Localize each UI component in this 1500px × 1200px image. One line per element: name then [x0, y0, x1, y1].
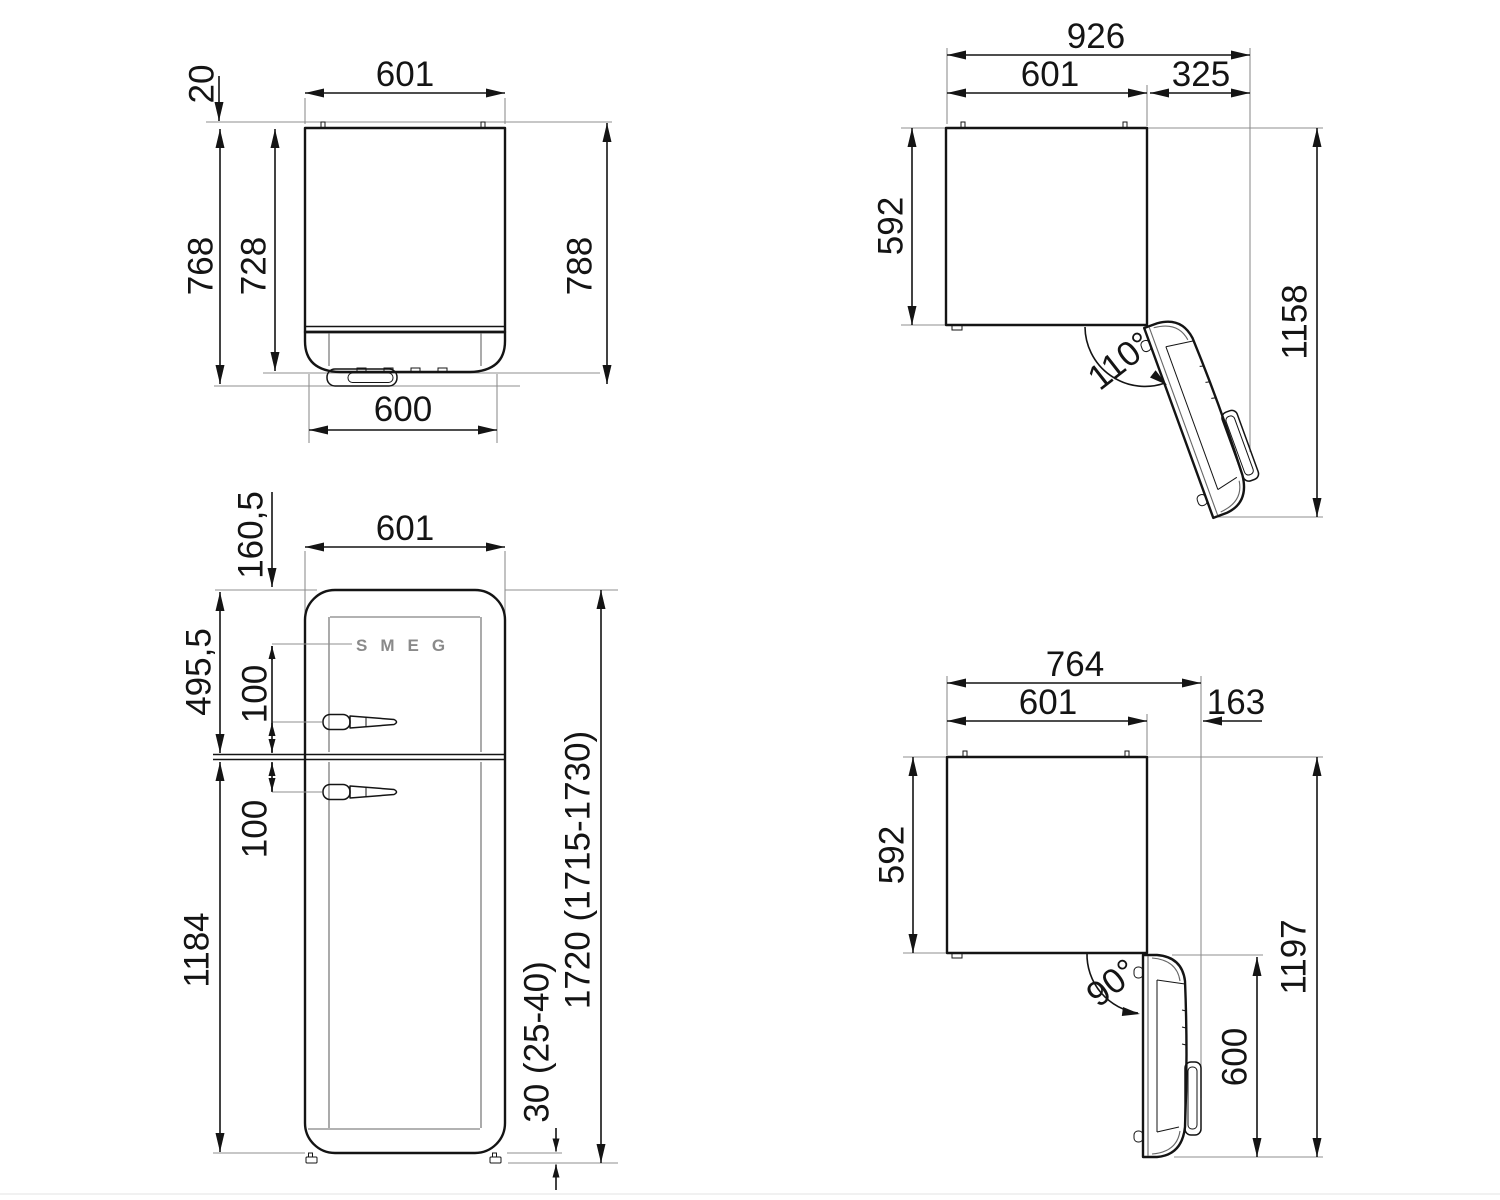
- fridge-body-top: [947, 757, 1147, 953]
- upper-door-handle: [323, 715, 397, 730]
- arc-arrowhead: [1122, 1007, 1140, 1016]
- view-top-open-110: 110° 926 601 325 592 1158: [872, 17, 1324, 521]
- dim-depth-label: 592: [873, 826, 912, 884]
- view-front: SMEG 601 160,5 495,5: [178, 491, 619, 1190]
- dim-clearance-label: 325: [1172, 55, 1230, 94]
- fridge-front: [305, 590, 505, 1153]
- dim-logo-offset-label: 160,5: [232, 491, 271, 579]
- dim-width-label: 601: [376, 509, 434, 548]
- adjustable-foot: [306, 1153, 317, 1163]
- view-top-open-90: 90° 764 601 163 592 1197 600: [873, 645, 1324, 1157]
- dim-overall-depth-label: 1197: [1275, 919, 1314, 994]
- dim-overall-depth-label: 1158: [1276, 284, 1315, 359]
- fridge-dimension-drawing: 601 20 768 728 788 600 110°: [0, 0, 1500, 1200]
- brand-logo: SMEG: [356, 636, 458, 655]
- door-front-top: [305, 332, 505, 372]
- dim-overall-width-label: 764: [1046, 645, 1104, 684]
- dim-lower-handle-label: 100: [236, 800, 275, 858]
- dim-height-label: 1720 (1715-1730): [559, 731, 598, 1009]
- dim-width-label: 601: [1021, 55, 1079, 94]
- arc-arrowhead: [1150, 370, 1167, 385]
- dim-width-label: 601: [1019, 683, 1077, 722]
- lower-door-handle: [323, 785, 397, 800]
- dim-door-width-label: 600: [374, 390, 432, 429]
- technical-drawing-page: 601 20 768 728 788 600 110°: [0, 0, 1500, 1200]
- dim-door-depth-label: 600: [1216, 1028, 1255, 1086]
- dim-upper-handle-label: 100: [236, 665, 275, 723]
- fridge-body-top: [946, 128, 1147, 325]
- dim-overall-width-label: 926: [1067, 17, 1125, 56]
- dim-depth-overall-label: 788: [561, 237, 600, 295]
- dim-depth-label: 592: [872, 197, 911, 255]
- view-top-closed: 601 20 768 728 788 600: [182, 55, 613, 443]
- dim-hinge-offset-label: 20: [183, 65, 222, 104]
- dim-angle-label: 90°: [1079, 951, 1145, 1014]
- fridge-body-top: [305, 128, 505, 332]
- dim-depth-door-label: 768: [182, 237, 221, 295]
- dim-lower-door-label: 1184: [178, 912, 217, 987]
- adjustable-foot: [490, 1153, 501, 1163]
- dim-feet-label: 30 (25-40): [518, 961, 557, 1122]
- dim-depth-body-label: 728: [235, 237, 274, 295]
- dim-width-label: 601: [376, 55, 434, 94]
- dim-upper-door-label: 495,5: [180, 628, 219, 716]
- dim-clearance-label: 163: [1207, 683, 1265, 722]
